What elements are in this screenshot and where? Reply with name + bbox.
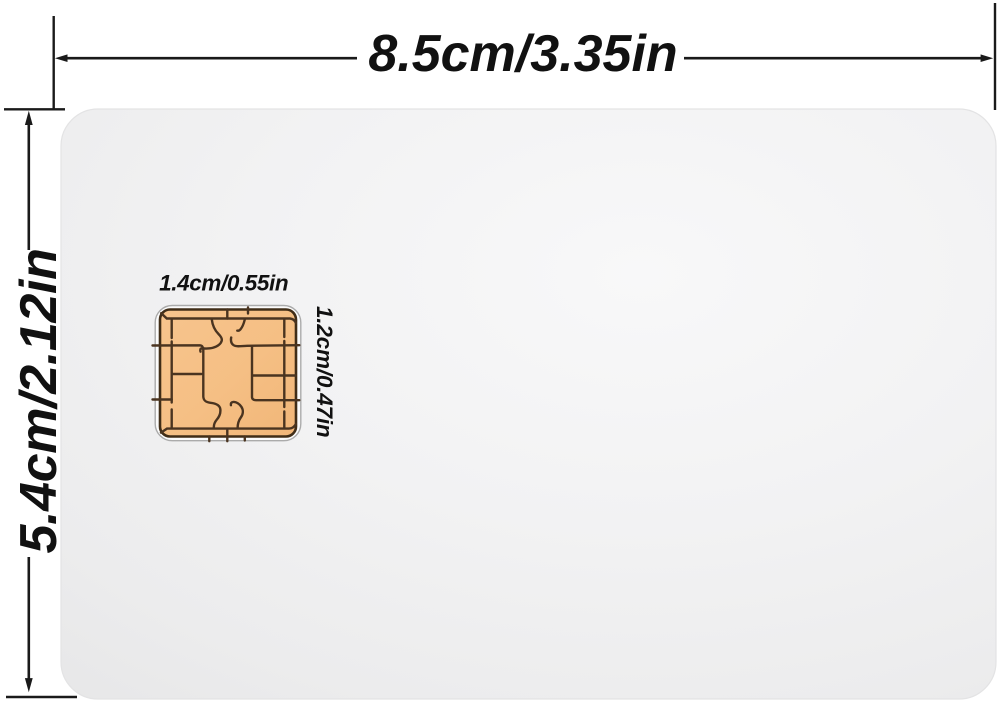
- svg-text:1.4cm/0.55in: 1.4cm/0.55in: [159, 271, 288, 296]
- svg-text:5.4cm/2.12in: 5.4cm/2.12in: [10, 248, 68, 553]
- svg-text:1.2cm/0.47in: 1.2cm/0.47in: [312, 306, 337, 437]
- svg-text:8.5cm/3.35in: 8.5cm/3.35in: [368, 25, 677, 83]
